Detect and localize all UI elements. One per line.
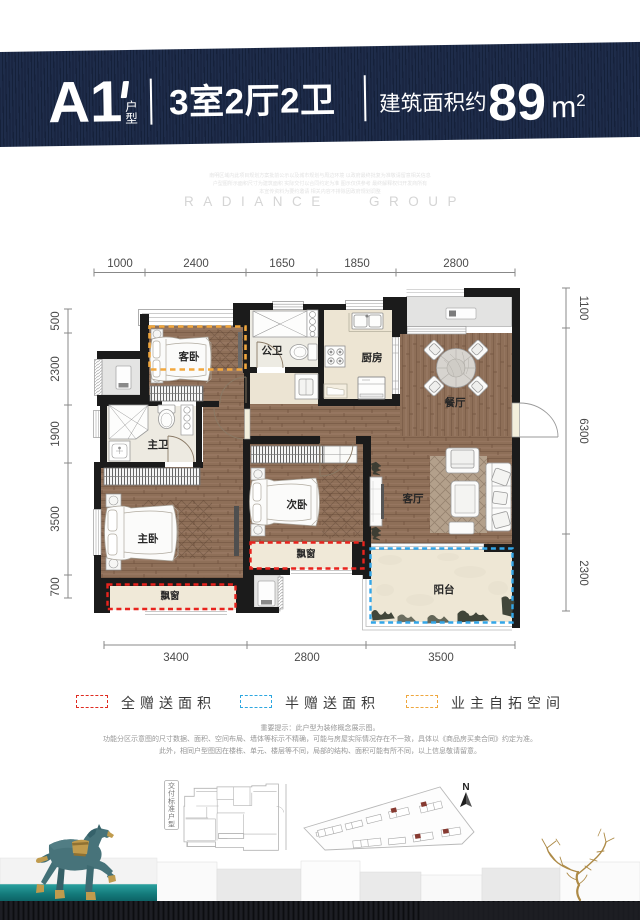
svg-text:交付标准户型: 交付标准户型 (168, 781, 175, 829)
svg-text:N: N (462, 782, 469, 793)
